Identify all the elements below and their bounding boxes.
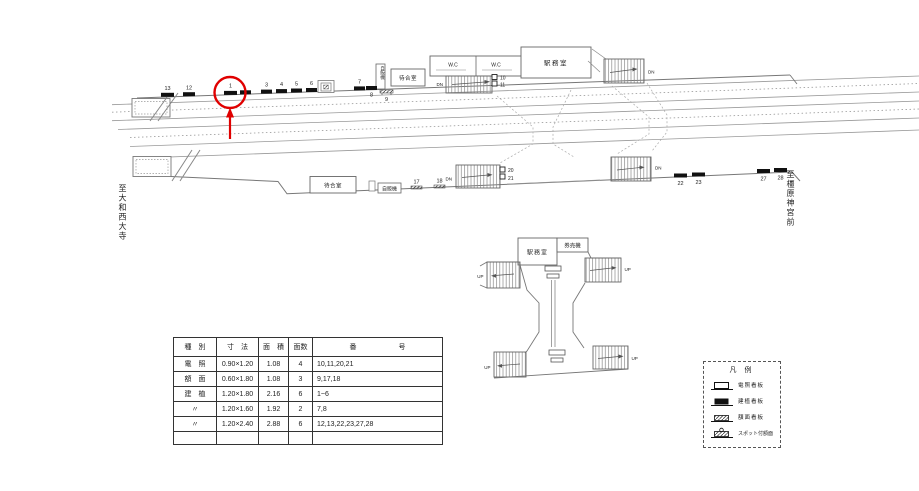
up-label-tl: UP <box>477 274 483 279</box>
lower-platform: 待合室 自販機 17 18 DN <box>133 150 800 194</box>
cell-area: 2.16 <box>259 387 289 402</box>
upper-station-office: 駅務室 <box>521 47 606 78</box>
upper-waiting-room-label: 待合室 <box>399 74 417 82</box>
header-area: 面 積 <box>259 338 289 357</box>
concourse-gate-rail <box>545 266 565 362</box>
board-label-21: 21 <box>508 176 514 182</box>
ad-board-22: 22 <box>674 174 687 188</box>
station-layout-svg: 待合室 W.C W.C 駅務室 DN <box>0 0 919 491</box>
board-label-22: 22 <box>677 181 683 187</box>
ad-board-1: 1 <box>224 84 237 95</box>
lighted-board-11: 11 <box>492 81 505 89</box>
shelter-structure <box>318 81 334 93</box>
spot-panel-icon <box>709 427 735 439</box>
cell-faces: 4 <box>289 357 313 372</box>
cell-faces: 6 <box>289 387 313 402</box>
legend-box: 凡 例 電照看板 建植看板 額面看板 <box>703 361 781 448</box>
cell-type: 建 植 <box>174 387 217 402</box>
wc-right-label: W.C <box>491 63 501 69</box>
lower-left-dn-label: DN <box>446 177 453 182</box>
lighted-board-21: 21 <box>500 174 514 182</box>
lighted-signboard-icon <box>709 380 735 391</box>
cell-type: 額 面 <box>174 372 217 387</box>
legend-label-spot-panel: スポット付額面 <box>738 430 773 437</box>
ad-board-3: 3 <box>261 83 272 94</box>
ad-board-27: 27 <box>757 169 770 183</box>
cell-size: 1.20×2.40 <box>217 417 259 432</box>
up-label-br: UP <box>632 356 638 361</box>
board-label-18: 18 <box>436 179 442 185</box>
ad-board-23: 23 <box>692 173 705 187</box>
panel-board-18: 18 <box>434 179 445 189</box>
cell-numbers: 7,8 <box>313 402 443 417</box>
board-label-7: 7 <box>358 79 361 85</box>
legend-item-spot-panel: スポット付額面 <box>704 425 780 441</box>
board-label-9: 9 <box>385 97 388 103</box>
panel-signboard-icon <box>709 412 735 423</box>
lighted-board-20: 20 <box>500 167 514 174</box>
spec-table-header-row: 種 別 寸 法 面 積 面数 番 号 <box>174 338 443 357</box>
header-size: 寸 法 <box>217 338 259 357</box>
cell-faces: 2 <box>289 402 313 417</box>
header-type: 種 別 <box>174 338 217 357</box>
panel-board-17: 17 <box>411 180 422 190</box>
cell-size: 1.20×1.80 <box>217 387 259 402</box>
concourse-diagram: 駅務室 券売機 UP <box>477 238 638 378</box>
header-numbers: 番 号 <box>313 338 443 357</box>
erected-signboard-icon <box>709 396 735 407</box>
ad-board-4: 4 <box>276 82 287 93</box>
legend-label-panel: 額面看板 <box>738 413 764 421</box>
lower-right-stairs-down: DN <box>611 157 662 181</box>
station-diagram-page: 待合室 W.C W.C 駅務室 DN <box>0 0 919 491</box>
table-row: 電 照 0.90×1.20 1.08 4 10,11,20,21 <box>174 357 443 372</box>
spec-table: 種 別 寸 法 面 積 面数 番 号 電 照 0.90×1.20 1.08 4 … <box>173 337 443 445</box>
cell-numbers: 10,11,20,21 <box>313 357 443 372</box>
cell-type: 〃 <box>174 402 217 417</box>
legend-label-lighted: 電照看板 <box>738 381 764 389</box>
cell-type: 電 照 <box>174 357 217 372</box>
table-row: 額 面 0.60×1.80 1.08 3 9,17,18 <box>174 372 443 387</box>
upper-mid-stairs-down: DN <box>437 76 493 93</box>
upper-right-dn-label: DN <box>648 70 655 75</box>
ad-board-12: 12 <box>183 85 195 96</box>
concourse-stairs-up-top-left: UP <box>477 262 520 288</box>
direction-label-left: 至大和西大寺 <box>118 184 126 241</box>
lower-waiting-room-label: 待合室 <box>324 182 342 190</box>
header-faces: 面数 <box>289 338 313 357</box>
wc-building: W.C W.C <box>430 56 522 76</box>
cell-area: 2.88 <box>259 417 289 432</box>
legend-item-erected: 建植看板 <box>704 393 780 409</box>
cell-numbers: 1~6 <box>313 387 443 402</box>
board-label-11: 11 <box>500 83 505 89</box>
highlight-arrowhead <box>226 108 234 118</box>
up-label-bl: UP <box>484 365 490 370</box>
board-label-5: 5 <box>295 82 298 88</box>
break-mark <box>172 150 192 181</box>
board-label-8: 8 <box>370 93 373 99</box>
ad-board-8: 8 <box>366 86 377 99</box>
ad-boards-upper: 13 12 1 3 4 <box>161 79 393 103</box>
table-row: 〃 1.20×1.60 1.92 2 7,8 <box>174 402 443 417</box>
lower-left-stairs-down: DN <box>446 165 501 188</box>
board-label-20: 20 <box>508 168 514 174</box>
table-row-empty <box>174 432 443 445</box>
legend-label-erected: 建植看板 <box>738 397 764 405</box>
small-utility-box <box>369 181 375 191</box>
cell-numbers: 12,13,22,23,27,28 <box>313 417 443 432</box>
wc-left-label: W.C <box>448 63 458 69</box>
cell-area: 1.08 <box>259 357 289 372</box>
panel-board-9: 9 <box>380 90 393 103</box>
lower-vending-machine-label: 自販機 <box>382 186 397 193</box>
cell-numbers: 9,17,18 <box>313 372 443 387</box>
upper-vending-machine-label: 自販機 <box>377 66 385 80</box>
board-label-12: 12 <box>186 85 192 91</box>
concourse-stairs-up-bottom-left: UP <box>484 352 526 377</box>
board-label-6: 6 <box>310 81 313 87</box>
cell-size: 0.90×1.20 <box>217 357 259 372</box>
table-row: 〃 1.20×2.40 2.88 6 12,13,22,23,27,28 <box>174 417 443 432</box>
table-row: 建 植 1.20×1.80 2.16 6 1~6 <box>174 387 443 402</box>
lower-right-dn-label: DN <box>655 166 662 171</box>
board-label-27: 27 <box>760 177 766 183</box>
cell-area: 1.92 <box>259 402 289 417</box>
legend-title: 凡 例 <box>704 365 780 375</box>
up-label-tr: UP <box>625 267 631 272</box>
direction-label-right: 至橿原神宮前 <box>786 170 794 227</box>
board-label-10: 10 <box>500 76 506 82</box>
cell-size: 0.60×1.80 <box>217 372 259 387</box>
concourse-stairs-up-top-right: UP <box>585 258 631 282</box>
upper-station-office-label: 駅務室 <box>544 58 568 67</box>
cell-faces: 6 <box>289 417 313 432</box>
concourse-ticket-machine-label: 券売機 <box>564 242 581 250</box>
ad-board-13: 13 <box>161 86 174 97</box>
board-label-4: 4 <box>280 82 283 88</box>
board-label-28: 28 <box>777 176 783 182</box>
concourse-office-label: 駅務室 <box>527 249 548 257</box>
cell-faces: 3 <box>289 372 313 387</box>
ad-board-6: 6 <box>306 81 317 92</box>
cell-size: 1.20×1.60 <box>217 402 259 417</box>
board-label-3: 3 <box>265 83 268 89</box>
ad-board-7: 7 <box>354 79 365 90</box>
board-label-13: 13 <box>164 86 170 92</box>
upper-right-stairs-down: DN <box>604 59 655 83</box>
cell-area: 1.08 <box>259 372 289 387</box>
upper-mid-dn-label: DN <box>437 82 444 87</box>
ad-board-5: 5 <box>291 82 302 93</box>
board-label-23: 23 <box>695 180 701 186</box>
cell-type: 〃 <box>174 417 217 432</box>
concourse-stairs-up-bottom-right: UP <box>593 346 638 369</box>
board-label-17: 17 <box>413 180 419 186</box>
legend-item-panel: 額面看板 <box>704 409 780 425</box>
legend-item-lighted: 電照看板 <box>704 377 780 393</box>
board-label-1: 1 <box>229 84 232 90</box>
